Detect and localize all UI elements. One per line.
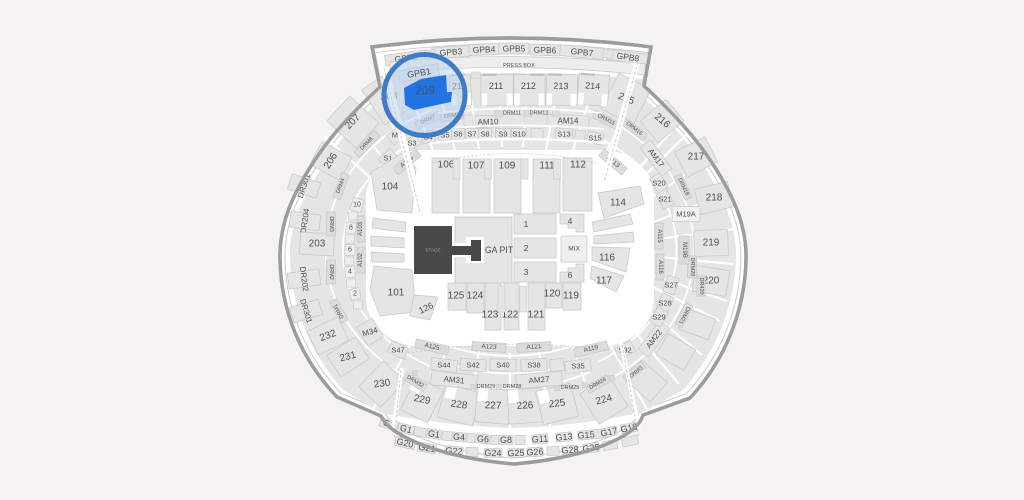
svg-text:A116: A116: [657, 260, 663, 274]
svg-text:DRM11: DRM11: [503, 111, 521, 117]
svg-text:124: 124: [467, 291, 484, 302]
svg-text:G6: G6: [477, 434, 490, 445]
svg-text:A102: A102: [358, 252, 364, 267]
svg-text:6: 6: [348, 246, 352, 253]
svg-text:A115: A115: [656, 229, 662, 243]
svg-text:G1: G1: [427, 428, 440, 440]
svg-text:S8: S8: [480, 130, 489, 139]
svg-text:214: 214: [585, 80, 601, 91]
svg-text:4: 4: [348, 269, 352, 276]
svg-text:DRM20: DRM20: [689, 258, 695, 277]
svg-text:G15: G15: [577, 429, 595, 440]
svg-text:109: 109: [499, 161, 516, 172]
svg-text:S28: S28: [658, 298, 671, 307]
svg-text:S6: S6: [453, 130, 462, 139]
svg-text:S35: S35: [571, 362, 584, 371]
svg-text:S9: S9: [498, 130, 507, 139]
svg-text:116: 116: [599, 253, 615, 264]
svg-text:S40: S40: [496, 361, 509, 370]
svg-text:125: 125: [448, 291, 465, 302]
svg-text:GPB4: GPB4: [472, 44, 495, 55]
svg-text:DRM28: DRM28: [503, 384, 522, 390]
svg-text:G13: G13: [555, 431, 573, 442]
svg-text:121: 121: [528, 310, 545, 321]
svg-text:S29: S29: [652, 313, 665, 322]
svg-text:217: 217: [688, 151, 705, 162]
svg-text:2: 2: [524, 243, 529, 253]
svg-text:PRESS BOX: PRESS BOX: [503, 63, 535, 69]
svg-text:117: 117: [596, 276, 612, 287]
svg-text:S20: S20: [652, 178, 665, 187]
svg-text:104: 104: [382, 182, 399, 193]
svg-text:M19B: M19B: [681, 242, 687, 258]
svg-text:G11: G11: [532, 433, 549, 444]
svg-text:119: 119: [563, 291, 579, 302]
svg-text:S10: S10: [512, 130, 525, 139]
svg-text:GPB5: GPB5: [503, 44, 526, 54]
svg-text:S42: S42: [466, 360, 479, 369]
svg-text:107: 107: [468, 161, 485, 172]
svg-text:S21: S21: [658, 195, 671, 204]
svg-text:S47: S47: [391, 346, 404, 355]
svg-text:DRM29: DRM29: [477, 384, 496, 390]
svg-text:211: 211: [489, 81, 503, 91]
svg-text:DRM3: DRM3: [328, 216, 334, 232]
svg-text:GA PIT: GA PIT: [485, 245, 514, 255]
svg-text:2: 2: [353, 291, 357, 298]
svg-text:120: 120: [544, 289, 561, 300]
svg-text:G26: G26: [526, 447, 544, 458]
svg-text:1: 1: [524, 219, 529, 229]
svg-text:6: 6: [568, 270, 573, 280]
svg-text:3: 3: [524, 267, 529, 277]
svg-text:STAGE: STAGE: [426, 248, 441, 253]
svg-text:S38: S38: [527, 361, 540, 370]
svg-text:DR420: DR420: [698, 277, 704, 294]
svg-text:GPB3: GPB3: [439, 46, 463, 58]
svg-text:8: 8: [349, 225, 353, 232]
svg-text:GPB7: GPB7: [570, 46, 594, 58]
svg-text:A103: A103: [358, 221, 364, 236]
svg-text:101: 101: [388, 288, 405, 299]
svg-text:G8: G8: [500, 435, 512, 445]
svg-text:G24: G24: [484, 448, 501, 458]
svg-text:G4: G4: [453, 432, 466, 443]
svg-text:AM14: AM14: [558, 117, 579, 126]
svg-text:212: 212: [521, 81, 536, 91]
svg-text:112: 112: [570, 160, 586, 171]
svg-text:4: 4: [568, 216, 573, 226]
svg-text:DRM12: DRM12: [530, 111, 549, 117]
svg-text:S7: S7: [467, 130, 476, 139]
svg-text:GPB6: GPB6: [533, 45, 556, 56]
svg-text:S3: S3: [407, 139, 416, 148]
svg-text:S27: S27: [664, 280, 677, 289]
svg-text:209: 209: [415, 86, 434, 98]
svg-text:M19A: M19A: [676, 210, 696, 219]
svg-text:S44: S44: [437, 361, 450, 370]
svg-text:219: 219: [703, 238, 720, 249]
svg-text:10: 10: [353, 201, 361, 208]
svg-text:114: 114: [610, 198, 626, 209]
svg-text:218: 218: [706, 193, 723, 204]
svg-text:123: 123: [482, 310, 499, 321]
svg-text:227: 227: [484, 400, 501, 412]
svg-text:DRM25: DRM25: [561, 385, 580, 391]
svg-text:AM27: AM27: [528, 375, 550, 386]
svg-text:MIX: MIX: [568, 246, 580, 253]
svg-text:S13: S13: [557, 130, 570, 139]
svg-text:203: 203: [309, 239, 326, 250]
svg-text:111: 111: [539, 161, 555, 172]
svg-text:213: 213: [553, 81, 568, 91]
svg-text:A123: A123: [481, 343, 497, 351]
svg-text:226: 226: [516, 400, 534, 412]
svg-text:G25: G25: [507, 448, 524, 458]
svg-text:DRM2: DRM2: [328, 264, 334, 280]
